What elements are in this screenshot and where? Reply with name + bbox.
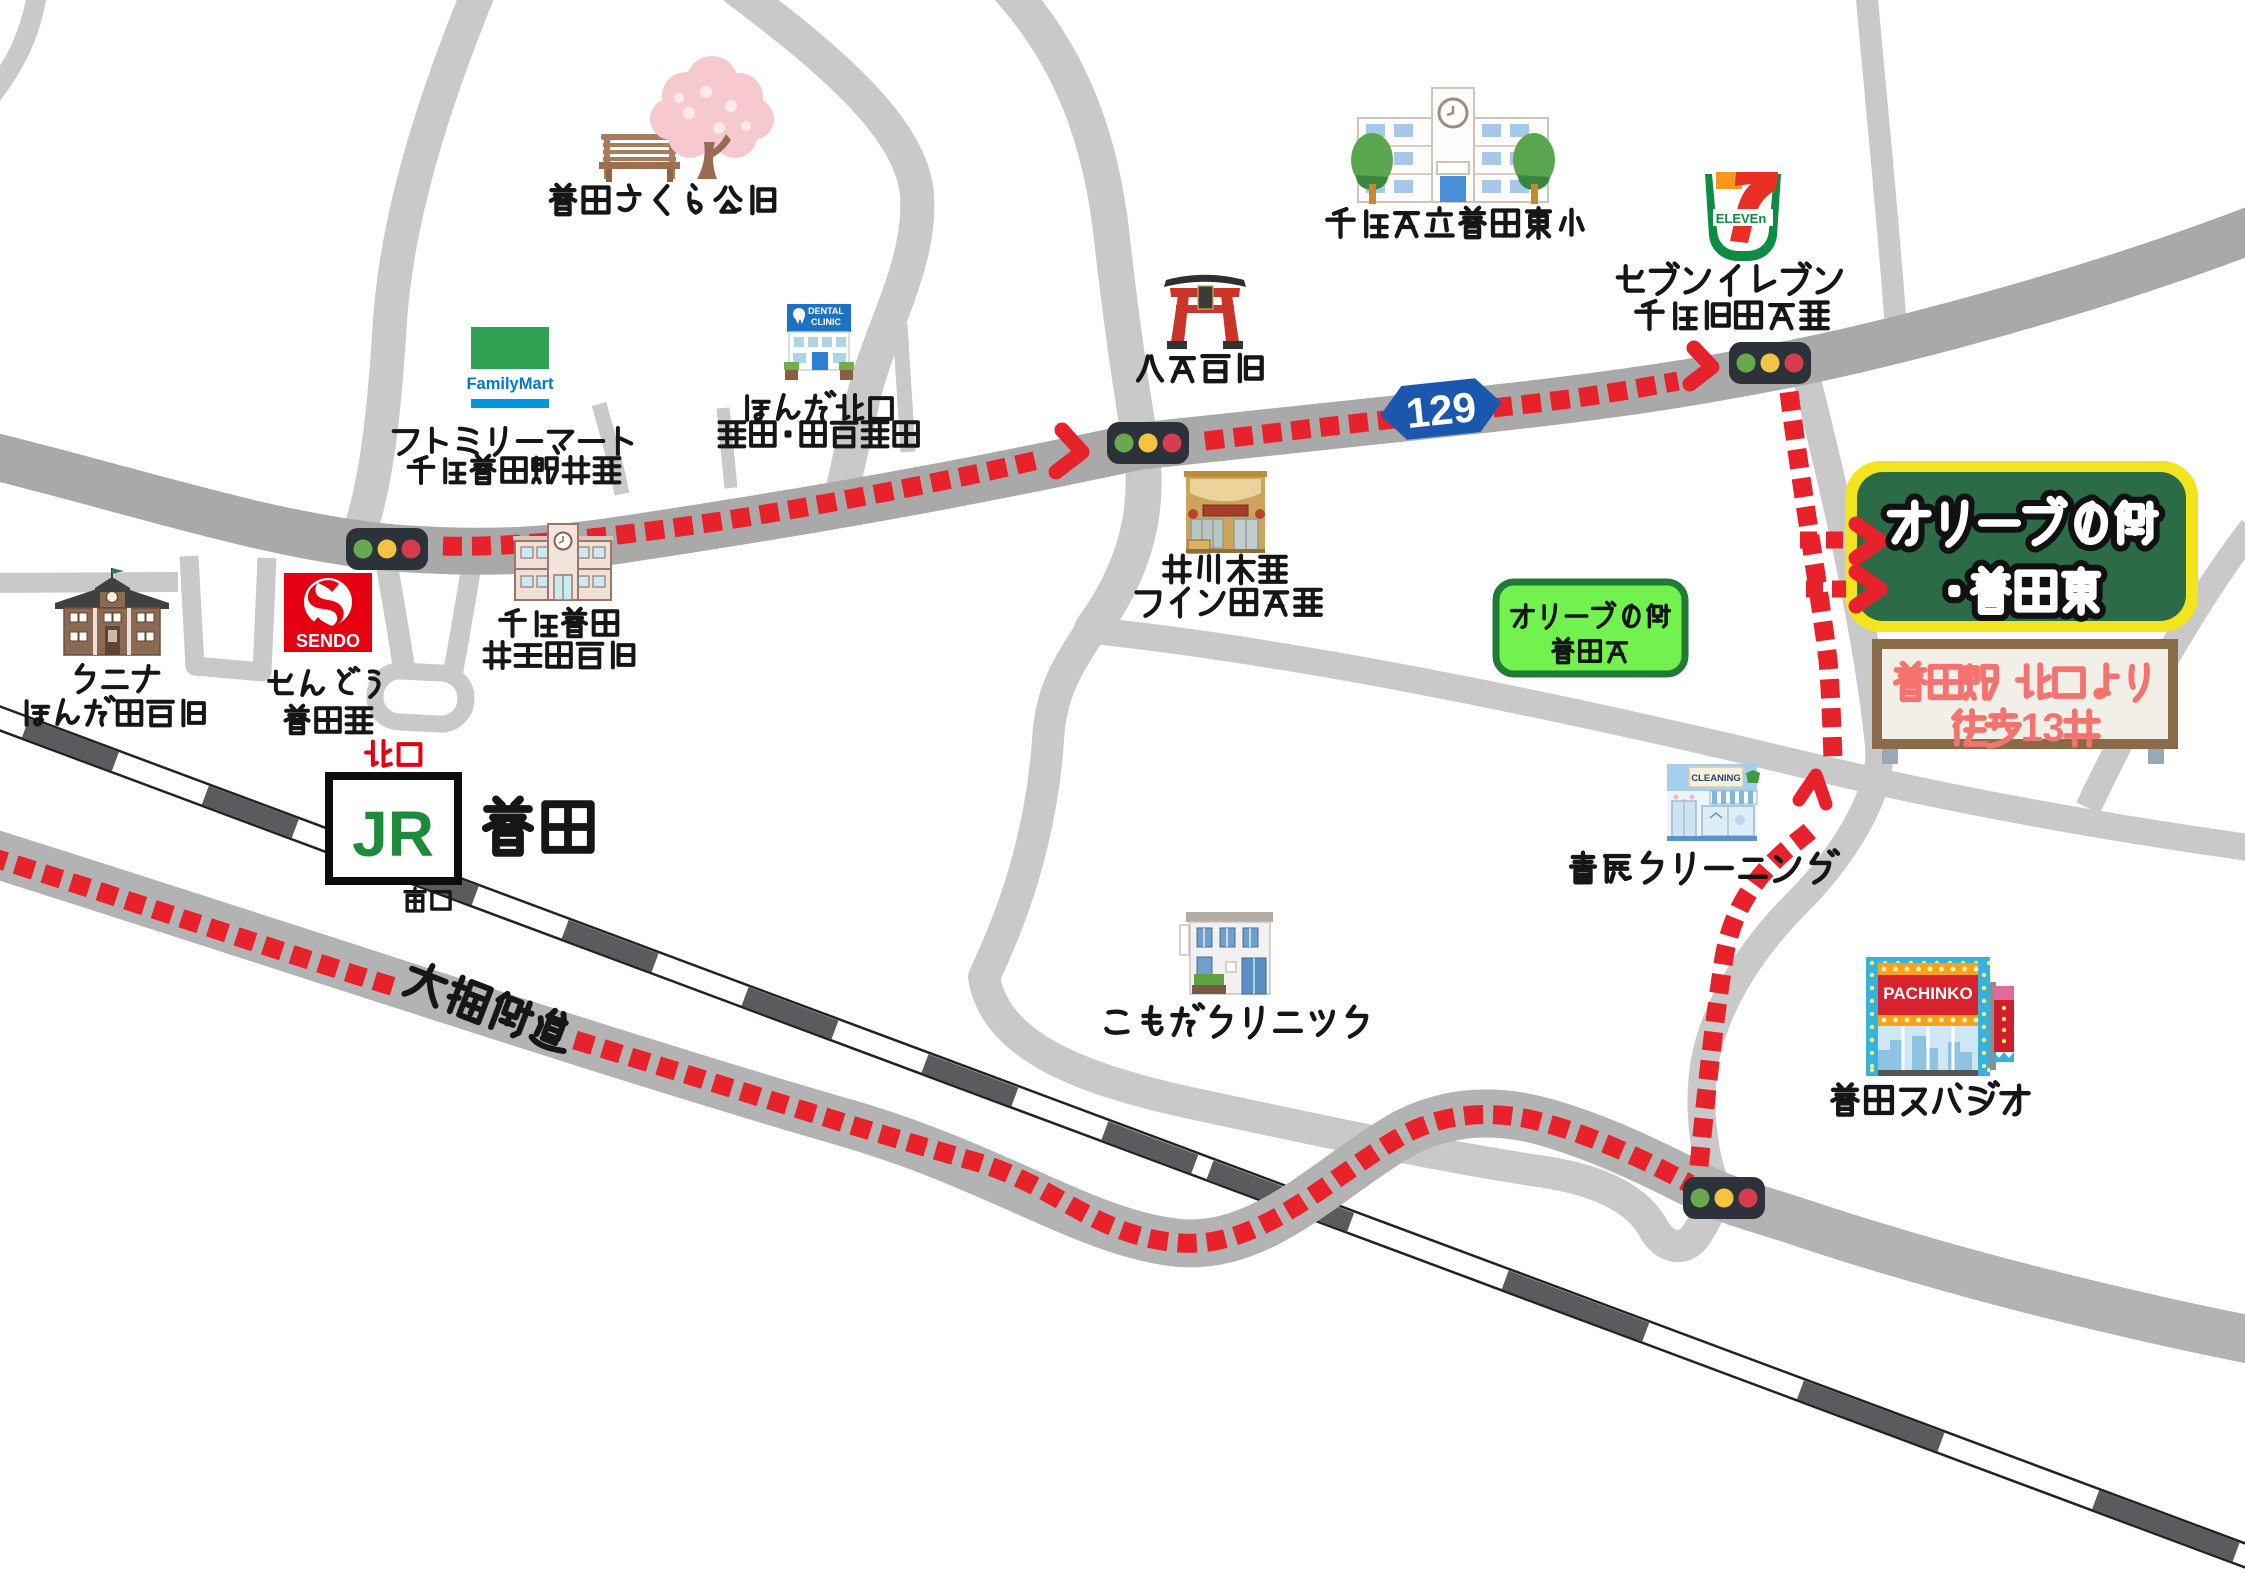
svg-text:CLEANING: CLEANING bbox=[1691, 773, 1741, 784]
svg-text:3: 3 bbox=[2042, 706, 2064, 750]
svg-text:129: 129 bbox=[1404, 383, 1479, 437]
svg-text:1: 1 bbox=[2021, 706, 2043, 750]
svg-text:PACHINKO: PACHINKO bbox=[1883, 984, 1972, 1003]
svg-text:SENDO: SENDO bbox=[296, 631, 360, 651]
svg-text:CLINIC: CLINIC bbox=[811, 317, 841, 327]
svg-text:ELEVEn: ELEVEn bbox=[1716, 211, 1767, 226]
svg-text:JR: JR bbox=[352, 798, 434, 870]
svg-text:DENTAL: DENTAL bbox=[808, 306, 844, 316]
svg-text:FamilyMart: FamilyMart bbox=[466, 375, 554, 393]
